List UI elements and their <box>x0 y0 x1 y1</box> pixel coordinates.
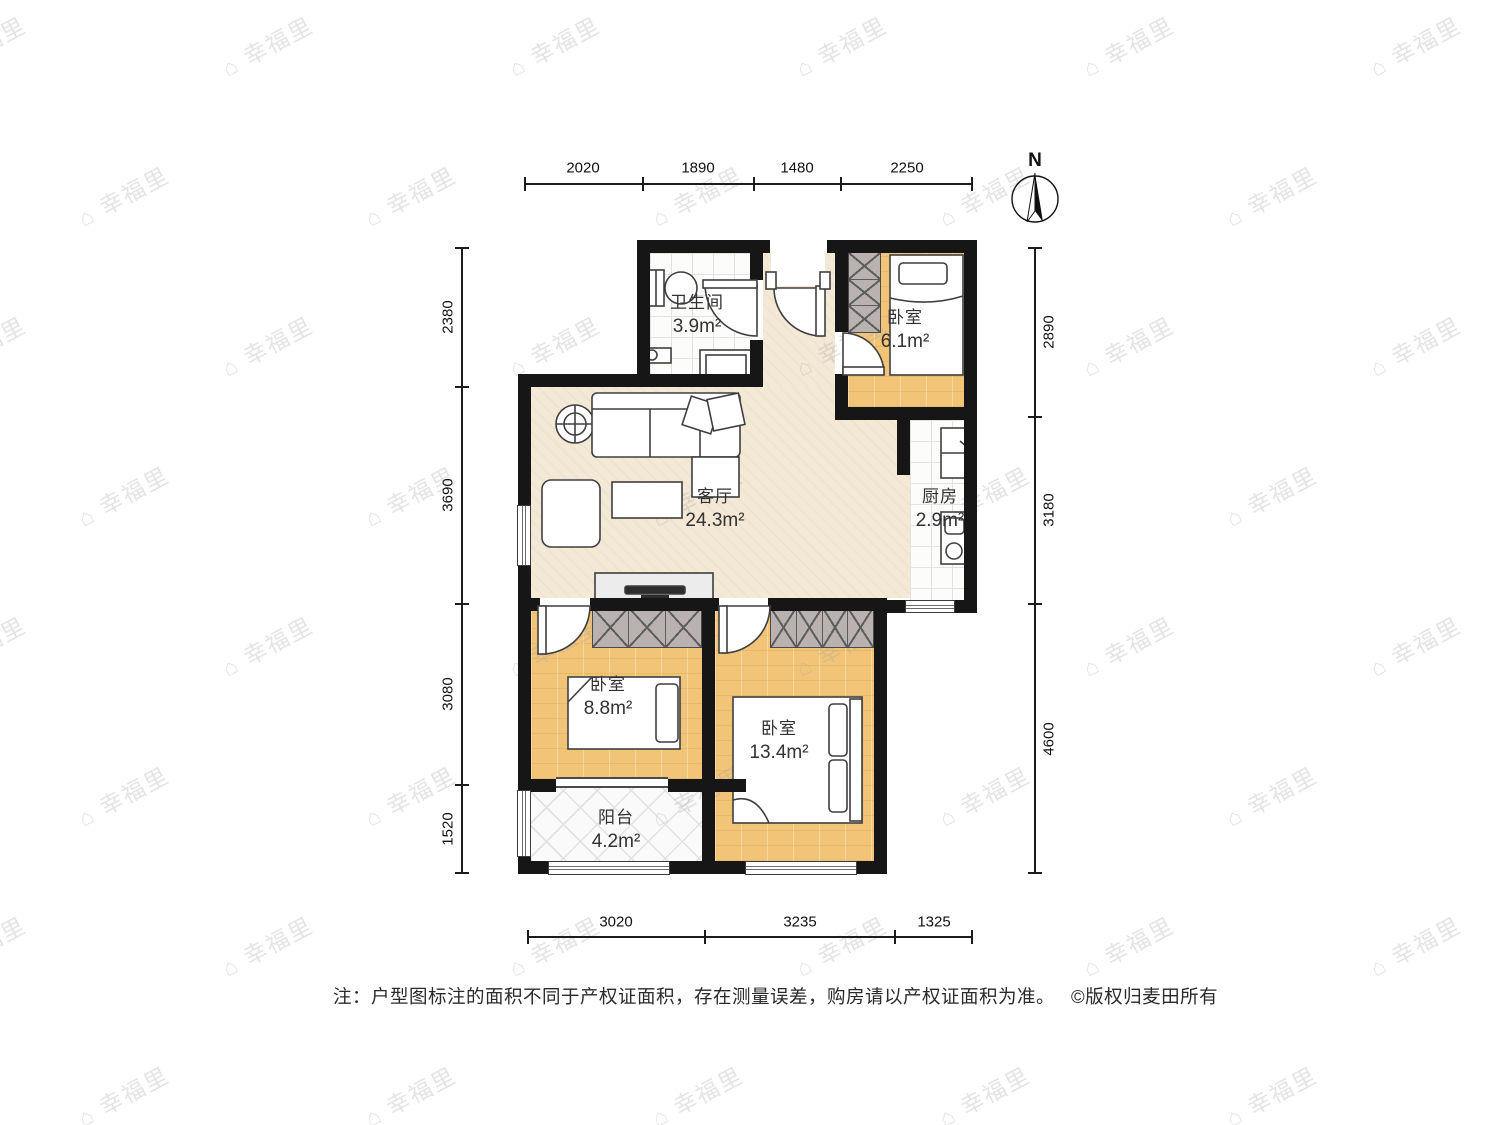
balcony-sliding-door <box>556 777 668 788</box>
window-living-west <box>517 505 531 566</box>
watermark-text: ⌂ 幸福里 <box>1076 7 1180 84</box>
watermark-text: ⌂ 幸福里 <box>71 457 175 534</box>
room-name: 阳台 <box>561 808 671 828</box>
wall-segment <box>874 598 887 874</box>
watermark-text: ⌂ 幸福里 <box>932 757 1036 834</box>
watermark-text: ⌂ 幸福里 <box>71 157 175 234</box>
watermark-text: ⌂ 幸福里 <box>71 1057 175 1125</box>
room-label-balcony: 阳台 4.2m² <box>561 808 671 854</box>
room-name: 卧室 <box>553 675 663 695</box>
watermark-text: ⌂ 幸福里 <box>1219 157 1323 234</box>
watermark-text: ⌂ 幸福里 <box>358 157 462 234</box>
wardrobe-bedroom-sw <box>592 607 702 648</box>
dim-top-1: 2020 <box>566 160 599 177</box>
compass-icon: N <box>995 142 1075 242</box>
watermark-text: ⌂ 幸福里 <box>789 7 893 84</box>
dim-bottom-3: 1325 <box>917 914 950 931</box>
window-balcony-west <box>517 790 531 857</box>
wall-segment <box>518 374 531 505</box>
window-kitchen-south <box>905 600 955 613</box>
watermark-text: ⌂ 幸福里 <box>645 1057 749 1125</box>
dim-right-1: 2890 <box>1041 315 1058 348</box>
dimension-line-top <box>524 183 973 185</box>
dim-right-2: 3180 <box>1041 493 1058 526</box>
watermark-text: ⌂ 幸福里 <box>0 607 31 684</box>
window-bedroom-south <box>745 861 857 875</box>
watermark-text: ⌂ 幸福里 <box>0 7 31 84</box>
dim-left-1: 2380 <box>440 300 457 333</box>
dim-left-2: 3690 <box>440 478 457 511</box>
wall-segment <box>887 600 905 613</box>
room-name: 卧室 <box>724 719 834 739</box>
watermark-text: ⌂ 幸福里 <box>1219 1057 1323 1125</box>
room-area: 8.8m² <box>553 698 663 721</box>
wall-segment <box>518 566 531 779</box>
room-name: 卧室 <box>850 308 960 328</box>
watermark-text: ⌂ 幸福里 <box>215 307 319 384</box>
room-area: 4.2m² <box>561 831 671 854</box>
wall-segment <box>835 240 848 332</box>
compass-n-label: N <box>1028 150 1042 171</box>
dimension-line-bottom <box>527 936 973 938</box>
watermark-text: ⌂ 幸福里 <box>0 907 31 984</box>
watermark-text: ⌂ 幸福里 <box>215 7 319 84</box>
wall-segment <box>964 240 977 613</box>
window-balcony-south <box>548 861 670 875</box>
wall-segment <box>750 340 763 387</box>
watermark-text: ⌂ 幸福里 <box>215 907 319 984</box>
disclaimer-note: 注：户型图标注的面积不同于产权证面积，存在测量误差，购房请以产权证面积为准。©版… <box>333 983 1218 1009</box>
room-area: 2.9m² <box>885 510 995 533</box>
room-label-bathroom: 卫生间 3.9m² <box>642 293 752 339</box>
wall-segment <box>518 857 531 874</box>
room-area: 13.4m² <box>724 742 834 765</box>
room-label-kitchen: 厨房 2.9m² <box>885 487 995 533</box>
wall-segment <box>897 407 910 475</box>
dim-top-3: 1480 <box>780 160 813 177</box>
watermark-text: ⌂ 幸福里 <box>1219 757 1323 834</box>
dim-left-3: 3080 <box>440 677 457 710</box>
watermark-text: ⌂ 幸福里 <box>502 7 606 84</box>
room-area: 6.1m² <box>850 331 960 354</box>
watermark-text: ⌂ 幸福里 <box>932 1057 1036 1125</box>
wall-segment <box>750 240 763 280</box>
wardrobe-bedroom-s <box>770 607 874 648</box>
room-area: 3.9m² <box>642 316 752 339</box>
watermark-text: ⌂ 幸福里 <box>1076 307 1180 384</box>
watermark-text: ⌂ 幸福里 <box>71 757 175 834</box>
copyright-text: ©版权归麦田所有 <box>1071 986 1218 1007</box>
wall-segment <box>835 374 848 420</box>
dim-bottom-1: 3020 <box>599 914 632 931</box>
dimension-line-right <box>1034 247 1036 874</box>
wall-segment <box>702 598 715 874</box>
room-name: 客厅 <box>660 487 770 507</box>
watermark-text: ⌂ 幸福里 <box>502 307 606 384</box>
room-label-bedroom-s: 卧室 13.4m² <box>724 719 834 765</box>
watermark-text: ⌂ 幸福里 <box>502 907 606 984</box>
room-area: 24.3m² <box>660 510 770 533</box>
watermark-text: ⌂ 幸福里 <box>358 1057 462 1125</box>
note-text: 注：户型图标注的面积不同于产权证面积，存在测量误差，购房请以产权证面积为准。 <box>333 986 1055 1007</box>
dim-bottom-2: 3235 <box>783 914 816 931</box>
room-label-living: 客厅 24.3m² <box>660 487 770 533</box>
wall-segment <box>827 240 977 253</box>
floorplan-canvas: ⌂ 幸福里⌂ 幸福里⌂ 幸福里⌂ 幸福里⌂ 幸福里⌂ 幸福里⌂ 幸福里⌂ 幸福里… <box>0 0 1500 1125</box>
watermark-text: ⌂ 幸福里 <box>1363 607 1467 684</box>
wall-segment <box>768 598 887 611</box>
room-name: 卫生间 <box>642 293 752 313</box>
dimension-line-left <box>461 247 463 874</box>
room-label-bedroom-sw: 卧室 8.8m² <box>553 675 663 721</box>
watermark-text: ⌂ 幸福里 <box>1363 307 1467 384</box>
dim-left-4: 1520 <box>440 812 457 845</box>
watermark-text: ⌂ 幸福里 <box>0 307 31 384</box>
room-label-bedroom-ne: 卧室 6.1m² <box>850 308 960 354</box>
room-name: 厨房 <box>885 487 995 507</box>
watermark-text: ⌂ 幸福里 <box>1076 607 1180 684</box>
wall-segment <box>590 598 719 611</box>
watermark-text: ⌂ 幸福里 <box>1363 7 1467 84</box>
dim-right-3: 4600 <box>1041 722 1058 755</box>
watermark-text: ⌂ 幸福里 <box>1076 907 1180 984</box>
dim-top-4: 2250 <box>890 160 923 177</box>
watermark-text: ⌂ 幸福里 <box>215 607 319 684</box>
dim-top-2: 1890 <box>681 160 714 177</box>
watermark-text: ⌂ 幸福里 <box>1363 907 1467 984</box>
watermark-text: ⌂ 幸福里 <box>1219 457 1323 534</box>
